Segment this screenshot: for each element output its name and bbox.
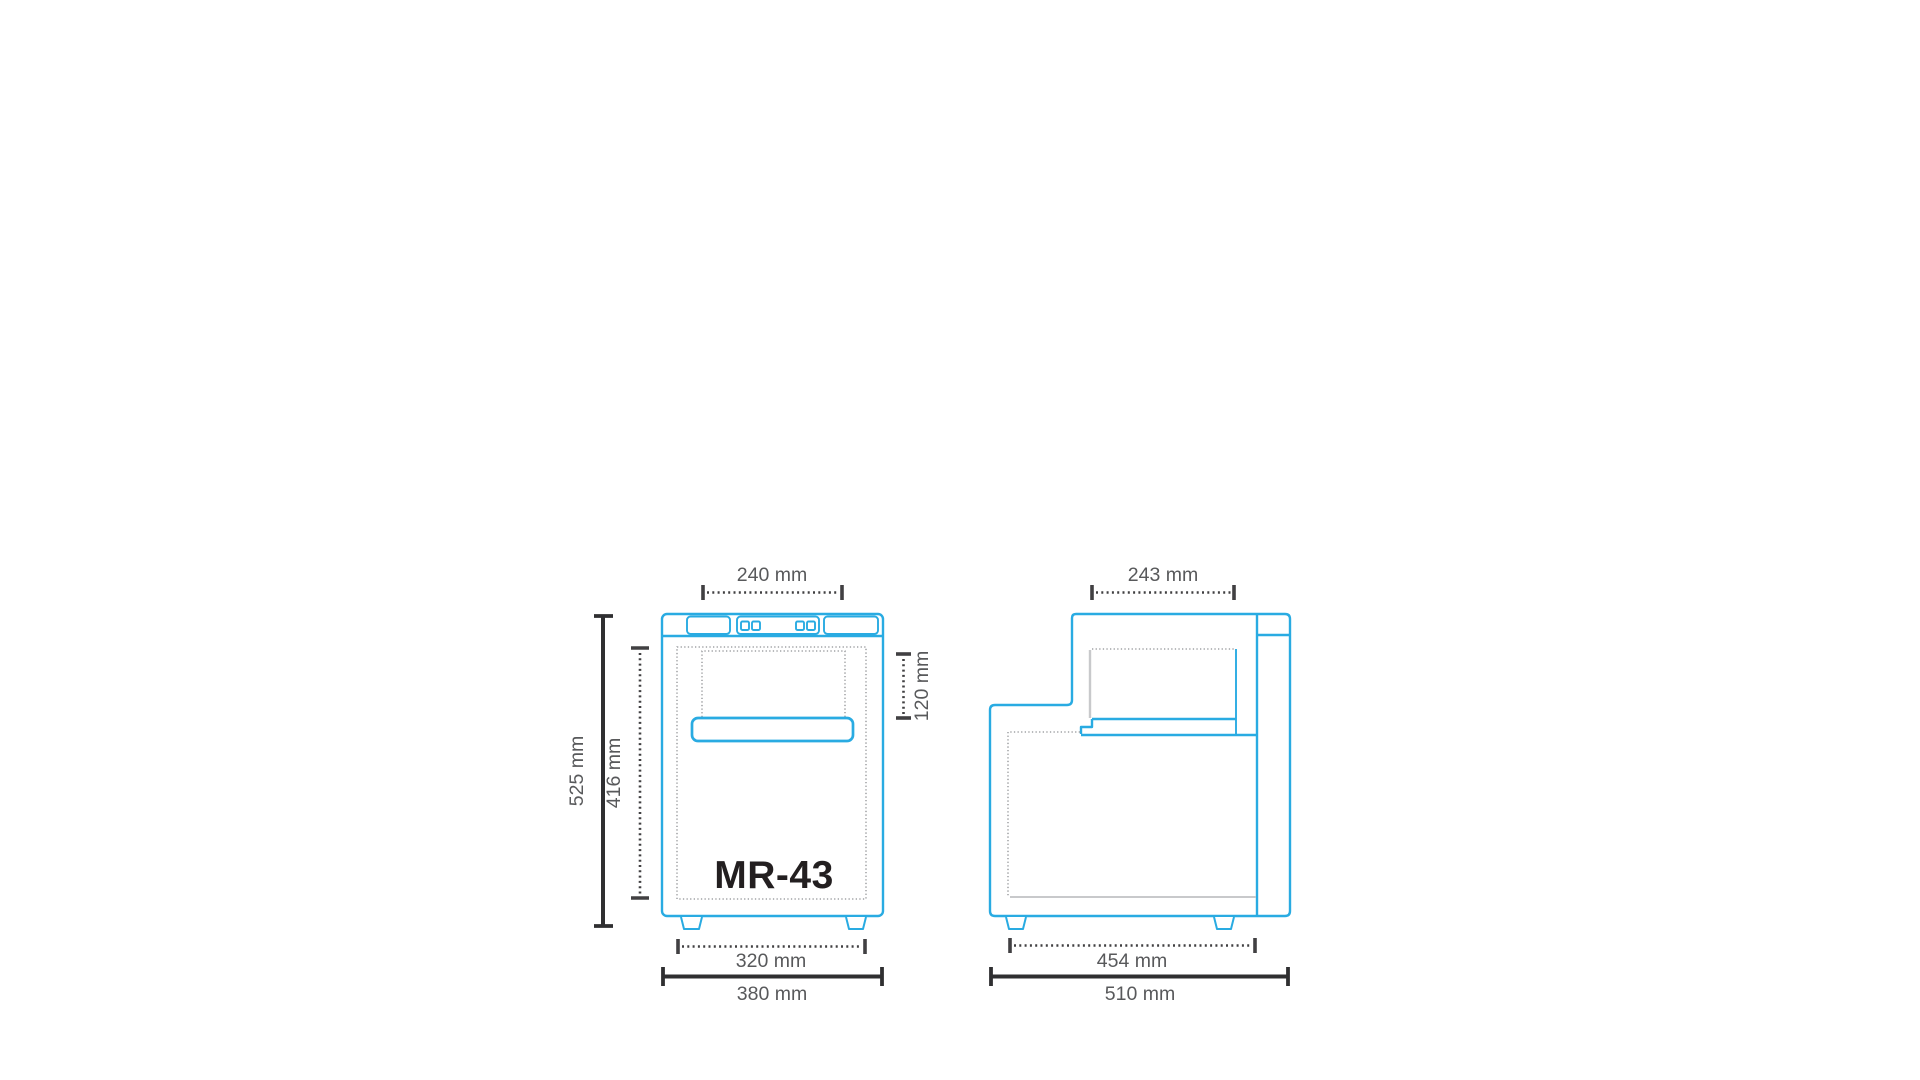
dimension-drawing-canvas: MR-43 240 mm 525 mm 416 mm: [0, 0, 1920, 1080]
front-foot-right: [846, 917, 866, 929]
dim-front-top-recess: 120 mm: [896, 651, 933, 721]
dim-label-380: 380 mm: [737, 983, 807, 1005]
dim-label-240: 240 mm: [737, 564, 807, 586]
side-foot-left: [1006, 917, 1026, 929]
dim-front-feet-width: 320 mm: [678, 939, 865, 972]
dim-label-320: 320 mm: [736, 950, 806, 972]
dim-label-416: 416 mm: [603, 738, 625, 808]
dim-label-525: 525 mm: [566, 736, 588, 806]
side-foot-right: [1214, 917, 1234, 929]
dim-label-510: 510 mm: [1105, 983, 1175, 1005]
side-view: [990, 614, 1290, 929]
dim-side-overall-depth: 510 mm: [991, 967, 1288, 1005]
dim-front-overall-width: 380 mm: [663, 967, 882, 1005]
dim-front-top-width: 240 mm: [703, 564, 842, 600]
dim-front-interior-height: 416 mm: [603, 648, 649, 898]
front-view: MR-43: [662, 614, 883, 929]
model-label: MR-43: [714, 854, 834, 897]
front-foot-left: [681, 917, 702, 929]
dim-label-120: 120 mm: [911, 651, 933, 721]
mr43-dimension-diagram: MR-43 240 mm 525 mm 416 mm: [0, 0, 1920, 1080]
dim-side-feet-depth: 454 mm: [1010, 938, 1255, 972]
dim-side-top-depth: 243 mm: [1092, 564, 1234, 600]
side-cabinet-outline: [990, 614, 1290, 916]
dim-label-454: 454 mm: [1097, 950, 1167, 972]
dim-label-243: 243 mm: [1128, 564, 1198, 586]
door-handle: [692, 718, 853, 741]
